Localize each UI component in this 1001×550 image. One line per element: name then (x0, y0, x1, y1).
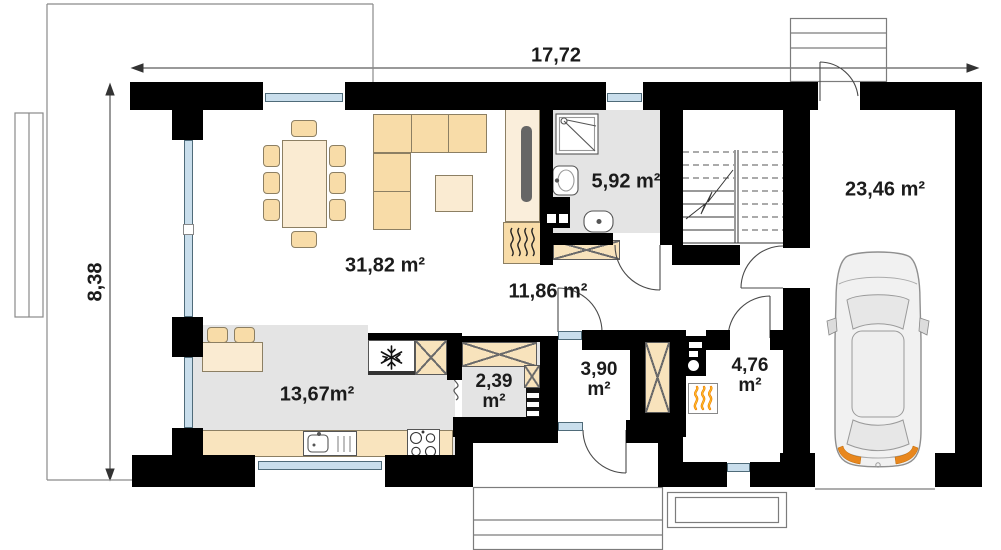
wall (545, 233, 613, 245)
wall (447, 333, 462, 380)
fridge (368, 340, 415, 375)
dining-chair (329, 145, 346, 167)
closet-side-cabinet (524, 365, 540, 388)
room-label-bathroom: 5,92 m² (592, 171, 661, 194)
shaft-ladder (526, 388, 540, 417)
dining-chair (291, 120, 317, 137)
wall (672, 245, 740, 265)
chimney-block (683, 336, 706, 376)
wall (130, 82, 263, 110)
wall (660, 110, 683, 245)
dining-chair (263, 145, 280, 167)
wall (172, 110, 203, 140)
kitchen-chair (207, 327, 228, 343)
car-top-view (827, 252, 929, 467)
sofa-top-section (373, 114, 487, 153)
bathroom-shaft (543, 197, 570, 228)
fridge-base (368, 371, 415, 375)
window-south-kitchen (258, 461, 382, 470)
wall (706, 330, 730, 350)
wall (780, 453, 815, 487)
dining-table (282, 140, 327, 228)
dining-chair (329, 199, 346, 221)
kitchen-sink-unit (303, 431, 357, 456)
dining-chair (291, 231, 317, 248)
room-label-boiler-line2: m² (732, 376, 769, 396)
dining-chair (263, 199, 280, 221)
room-label-vestibule: 3,90 m² (581, 360, 618, 400)
room-label-hall: 11,86 m² (509, 281, 588, 304)
back-door (820, 62, 858, 101)
wall (630, 330, 645, 423)
wall (132, 455, 255, 487)
front-door (583, 430, 626, 473)
wall (172, 317, 203, 357)
garage-door (741, 246, 783, 288)
wall (955, 110, 982, 455)
wall (770, 330, 783, 350)
wall (462, 336, 540, 342)
wall (935, 453, 982, 487)
wall (172, 428, 203, 457)
window-boiler (727, 463, 750, 472)
shaft-hole (547, 214, 556, 223)
wall (658, 443, 683, 487)
ottoman (435, 175, 473, 212)
front-door-sidelight (558, 422, 583, 431)
vestibule-door-threshold (558, 331, 582, 340)
closet-wardrobe (462, 342, 537, 367)
boiler-door (728, 296, 770, 338)
kitchen-table (202, 342, 263, 372)
room-label-vestibule-line2: m² (581, 380, 618, 400)
room-label-closet-line1: 2,39 (476, 372, 513, 392)
room-label-closet: 2,39 m² (476, 372, 513, 412)
dining-chair (329, 172, 346, 194)
kitchen-chair (234, 327, 255, 343)
tv-icon (521, 126, 532, 202)
room-label-garage: 23,46 m² (845, 179, 925, 202)
window-mullion (183, 224, 194, 235)
room-label-closet-line2: m² (476, 392, 513, 412)
shaft-hole (559, 214, 568, 223)
wall (540, 110, 553, 265)
dimension-label-height: 8,38 (85, 263, 108, 302)
bathroom-door (615, 245, 660, 290)
sofa-left-section (373, 153, 411, 230)
tall-cabinet (415, 340, 447, 375)
hall-niche-wardrobe (645, 342, 670, 413)
room-label-boiler: 4,76 m² (732, 356, 769, 396)
wall (683, 462, 727, 487)
wall (453, 417, 558, 437)
flue-hole (688, 360, 699, 371)
flue-hole (689, 342, 702, 348)
dimension-label-width: 17,72 (531, 45, 581, 68)
wall (860, 82, 982, 110)
room-label-living: 31,82 m² (345, 255, 425, 278)
wall (783, 288, 810, 453)
window-north-bathroom (607, 93, 642, 102)
flue-hole (689, 351, 698, 357)
floor-plan: 31,82 m² 13,67m² 5,92 m² 11,86 m² 23,46 … (0, 0, 1001, 550)
wall (783, 110, 810, 248)
window-west-kitchen (184, 357, 193, 428)
furnace (688, 383, 718, 414)
fireplace (503, 222, 543, 264)
staircase-symbol (683, 150, 783, 243)
wall (643, 82, 818, 110)
room-label-boiler-line1: 4,76 (732, 356, 769, 376)
wall (750, 462, 780, 487)
window-north-living (265, 93, 343, 102)
dining-chair (263, 172, 280, 194)
room-label-vestibule-line1: 3,90 (581, 360, 618, 380)
wall (540, 336, 558, 417)
wall (345, 82, 606, 110)
wall (582, 330, 630, 350)
room-label-kitchen: 13,67m² (280, 384, 355, 407)
